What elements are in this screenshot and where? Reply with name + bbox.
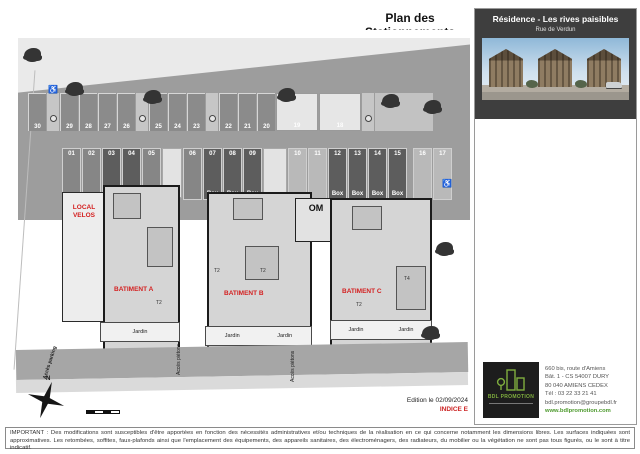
parking-row-top: 30 29 28 27 26 25 24 23 22 21 20 19 18 — [28, 93, 433, 131]
contact-phone: Tél : 03 22 33 21 41 — [545, 390, 617, 398]
tree-icon — [24, 48, 41, 62]
stall-number: 13 — [354, 151, 361, 157]
local-velos-label: LOCAL VELOS — [64, 204, 104, 220]
stall-number: 05 — [148, 151, 155, 157]
stall-box-label: Box — [392, 191, 403, 197]
stall-number: 27 — [104, 124, 111, 130]
scale-bar — [86, 410, 120, 414]
tree-icon — [278, 88, 295, 102]
stall-number: 28 — [85, 124, 92, 130]
logo-buildings-icon — [496, 368, 526, 392]
building-b-stair — [233, 198, 263, 220]
contact-email: bdl.promotion@groupebdl.fr — [545, 399, 617, 407]
jardin-label: Jardin — [277, 333, 292, 339]
stall-number: 21 — [244, 124, 251, 130]
unit-label-t2: T2 — [214, 268, 220, 274]
building-b-room — [245, 246, 279, 280]
tree-icon — [436, 242, 453, 256]
indice-label: INDICE E — [308, 405, 468, 414]
parking-stall: 22 — [219, 93, 237, 131]
stall-number: 15 — [394, 151, 401, 157]
parking-stall: 27 — [98, 93, 116, 131]
stall-box-label: Box — [372, 191, 383, 197]
garden-b: Jardin Jardin — [205, 326, 312, 346]
planter — [47, 93, 59, 131]
rendering-building — [489, 49, 523, 87]
unit-label-t4: T4 — [404, 276, 410, 282]
stall-number: 10 — [294, 151, 301, 157]
parking-stall: 29 — [60, 93, 78, 131]
stall-number: 14 — [374, 151, 381, 157]
scale-segment — [95, 411, 103, 413]
rendering-building — [538, 49, 572, 87]
handicap-icon: ♿ — [48, 86, 58, 94]
stall-box-label: Box — [352, 191, 363, 197]
contact-address-3: 80 040 AMIENS CEDEX — [545, 382, 617, 390]
local-velos-line2: VELOS — [73, 212, 95, 219]
parking-stall: 16 — [413, 148, 432, 200]
panel-header: Résidence - Les rives paisibles Rue de V… — [475, 9, 636, 119]
parking-stall: 13Box — [348, 148, 367, 200]
unit-label-t2: T2 — [156, 300, 162, 306]
contact-address-2: Bât. 1 - CS 54007 DURY — [545, 373, 617, 381]
stall-number: 26 — [123, 124, 130, 130]
garden-c: Jardin Jardin — [330, 320, 432, 340]
jardin-label: Jardin — [399, 327, 414, 333]
rendering-bush — [575, 80, 587, 88]
om-label: OM — [309, 203, 324, 213]
stall-number: 22 — [225, 124, 232, 130]
project-panel: Résidence - Les rives paisibles Rue de V… — [474, 8, 637, 425]
tree-icon — [422, 326, 439, 340]
parking-stall: 15Box — [388, 148, 407, 200]
stall-number: 30 — [34, 124, 41, 130]
project-subtitle: Rue de Verdun — [475, 27, 636, 33]
parking-stall: 26 — [117, 93, 135, 131]
site-plan: 30 29 28 27 26 25 24 23 22 21 20 19 18 ♿… — [8, 30, 470, 422]
parking-stall: 28 — [79, 93, 97, 131]
building-a-stair — [113, 193, 141, 219]
access-pedestrian-label: Accès piétons — [176, 344, 182, 375]
stall-number: 02 — [88, 151, 95, 157]
contact-details: 660 bis, route d'Amiens Bât. 1 - CS 5400… — [545, 362, 617, 418]
stall-number: 24 — [174, 124, 181, 130]
planter — [206, 93, 218, 131]
rendering-road — [482, 92, 629, 100]
jardin-label: Jardin — [349, 327, 364, 333]
project-title: Résidence - Les rives paisibles — [475, 9, 636, 24]
parking-stall: 14Box — [368, 148, 387, 200]
tree-icon — [424, 100, 441, 114]
parking-stall: 12Box — [328, 148, 347, 200]
contact-website-link[interactable]: www.bdlpromotion.com — [545, 407, 617, 415]
stall-number: 25 — [155, 124, 162, 130]
building-c-label: BATIMENT C — [342, 288, 382, 296]
stall-number: 01 — [68, 151, 75, 157]
stall-number: 03 — [108, 151, 115, 157]
building-c-stair — [352, 206, 382, 230]
north-label: N — [46, 376, 50, 382]
garden-a: Jardin — [100, 322, 180, 342]
stall-number: 20 — [263, 124, 270, 130]
north-arrow: N — [26, 380, 66, 420]
tree-icon — [144, 90, 161, 104]
stall-number: 23 — [193, 124, 200, 130]
stall-number: 16 — [419, 151, 426, 157]
unit-label-t2: T2 — [260, 268, 266, 274]
stall-number: 08 — [229, 151, 236, 157]
gap — [408, 148, 412, 198]
parking-stall: 17 — [433, 148, 452, 200]
edition-date: Edition le 02/09/2024 — [308, 396, 468, 405]
jardin-label: Jardin — [225, 333, 240, 339]
scale-segment — [111, 411, 119, 413]
rendering-car — [606, 82, 622, 88]
parking-stall: 24 — [168, 93, 186, 131]
local-velos-line1: LOCAL — [73, 204, 95, 211]
company-logo: BDL PROMOTION — [483, 362, 539, 418]
compass-star-icon — [26, 380, 66, 420]
logo-wordmark: BDL PROMOTION — [488, 394, 534, 400]
parking-stall: 30 — [28, 93, 46, 131]
tree-icon — [382, 94, 399, 108]
access-pedestrian-label: Accès piétons — [290, 351, 296, 382]
rendering-bush — [526, 80, 538, 88]
unit-label-t2: T2 — [356, 302, 362, 308]
building-b-label: BATIMENT B — [224, 290, 264, 298]
building-a-room — [147, 227, 173, 267]
stall-box-label: Box — [332, 191, 343, 197]
contact-address-1: 660 bis, route d'Amiens — [545, 365, 617, 373]
contact-block: BDL PROMOTION 660 bis, route d'Amiens Bâ… — [483, 362, 630, 418]
logo-divider — [489, 403, 533, 404]
stall-number: 04 — [128, 151, 135, 157]
project-rendering — [482, 38, 629, 100]
stall-number: 17 — [439, 151, 446, 157]
parking-stall: 18 — [319, 93, 361, 131]
parking-stall: 21 — [238, 93, 256, 131]
scale-segment — [87, 411, 95, 413]
handicap-icon: ♿ — [442, 180, 452, 188]
stall-number: 29 — [66, 124, 73, 130]
stall-number: 07 — [209, 151, 216, 157]
stall-number: 06 — [189, 151, 196, 157]
stall-number: 19 — [294, 123, 301, 129]
parking-stall: 23 — [187, 93, 205, 131]
parking-stall: 20 — [257, 93, 275, 131]
document-sheet: Plan des Stationnements 30 29 28 27 26 2… — [0, 0, 640, 454]
parking-stall: 06 — [183, 148, 202, 200]
building-c-room — [396, 266, 426, 310]
scale-segment — [103, 411, 111, 413]
tree-icon — [66, 82, 83, 96]
planter — [362, 93, 374, 131]
building-a-label: BATIMENT A — [114, 286, 153, 294]
stall-number: 12 — [334, 151, 341, 157]
stall-number: 18 — [337, 123, 344, 129]
access-ramp — [263, 148, 287, 198]
stall-number: 09 — [249, 151, 256, 157]
edition-block: Edition le 02/09/2024 INDICE E — [308, 396, 468, 414]
legal-disclaimer: IMPORTANT : Des modifications sont susce… — [5, 427, 635, 449]
jardin-label: Jardin — [133, 329, 148, 335]
stall-number: 11 — [314, 151, 320, 157]
